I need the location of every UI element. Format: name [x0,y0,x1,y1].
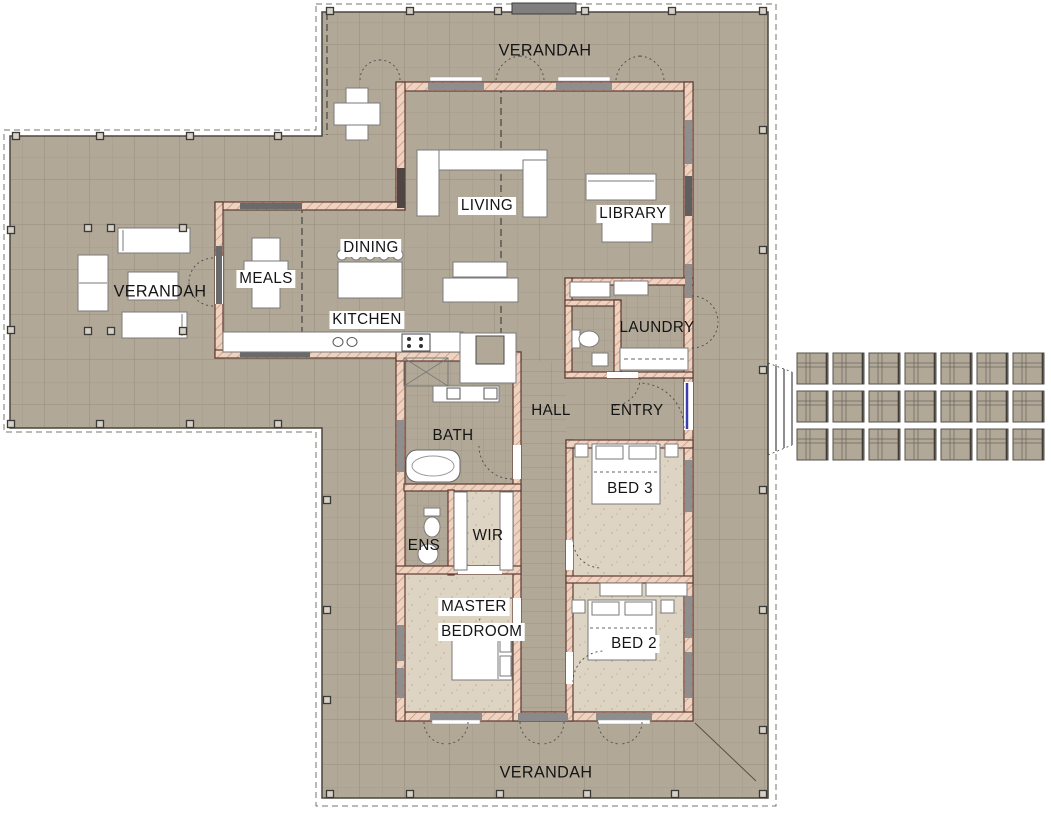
room-label-bed2: BED 2 [608,635,660,653]
room-label-verandah-left: VERANDAH [114,283,207,300]
top-step [512,3,576,14]
room-label-entry: ENTRY [610,403,663,419]
room-label-meals: MEALS [236,270,295,288]
coffee-table [443,262,518,302]
room-label-dining: DINING [340,239,401,257]
room-label-library: LIBRARY [596,205,669,223]
entry-steps [768,363,792,455]
floor-plan [0,0,1051,819]
dining-table [337,250,403,298]
room-label-verandah-bottom: VERANDAH [500,764,593,781]
floor-plan-page: VERANDAH VERANDAH VERANDAH MEALS DINING … [0,0,1051,819]
room-label-hall: HALL [531,403,571,419]
room-label-laundry: LAUNDRY [619,320,694,336]
kitchen-bench [223,332,463,352]
room-label-master-line2: BEDROOM [438,623,525,641]
room-label-living: LIVING [458,197,516,215]
room-label-bed3: BED 3 [604,480,656,498]
room-label-wir: WIR [473,528,504,544]
pantry [460,333,516,383]
room-label-bath: BATH [433,428,474,444]
room-label-verandah-top: VERANDAH [499,42,592,59]
room-label-master-line1: MASTER [438,598,509,616]
room-label-kitchen: KITCHEN [329,311,404,329]
room-label-master-bedroom: MASTER BEDROOM [438,598,525,648]
room-label-ens: ENS [408,538,440,554]
paver-path [797,353,1044,460]
